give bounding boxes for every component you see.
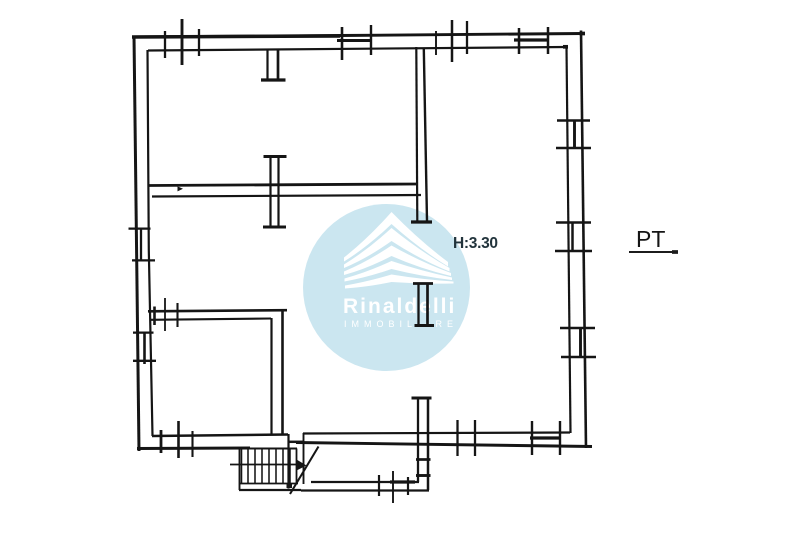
svg-text:IMMOBILIARE: IMMOBILIARE — [344, 319, 458, 329]
svg-text:H:3.30: H:3.30 — [453, 235, 498, 252]
svg-text:Rinaldelli: Rinaldelli — [343, 295, 456, 318]
svg-text:PT: PT — [636, 226, 665, 252]
